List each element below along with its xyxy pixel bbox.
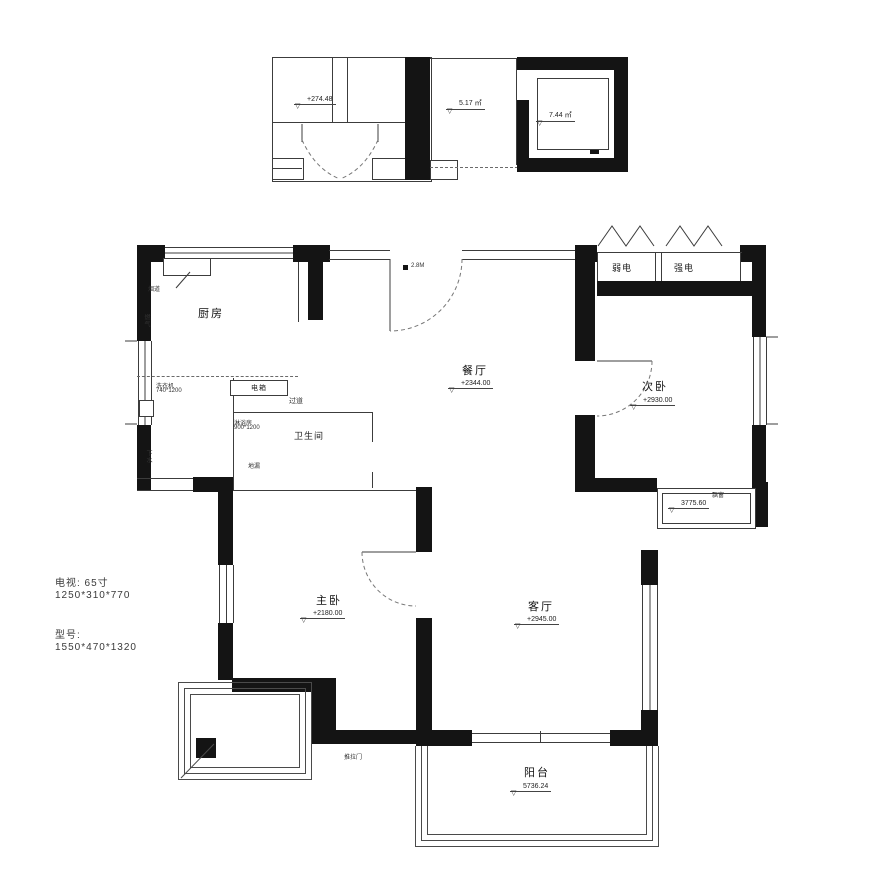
wall-segment <box>312 678 336 744</box>
weak-current-label: 弱电 <box>612 261 632 274</box>
wall-segment <box>597 281 755 296</box>
wall-segment <box>218 623 233 680</box>
living-window <box>642 585 658 710</box>
level-icon: ▽ <box>537 119 542 127</box>
bay-window-dim: ▽3775.60 <box>668 500 709 509</box>
room-label-master: 主卧 <box>316 592 342 608</box>
column-block <box>196 738 216 758</box>
wall-segment <box>575 245 597 262</box>
wall-segment <box>517 158 628 172</box>
wall-segment <box>575 415 595 492</box>
model-note-label: 型号: <box>55 626 81 641</box>
level-icon: ▽ <box>511 789 516 797</box>
shaft-divider-line <box>655 252 656 281</box>
annex-mid-room-line <box>430 58 517 59</box>
floor-plan-canvas: ▽+274.48 ▽5.17 ㎡ ▽7.44 ㎡ 弱电 强电 飘窗 ▽3775.… <box>0 0 871 895</box>
bath-wall-line <box>233 412 372 413</box>
wall-segment <box>614 57 628 172</box>
annex-shaft-line <box>332 57 333 122</box>
master-door-swing-arc <box>362 552 416 606</box>
master-window <box>219 565 234 623</box>
wall-segment <box>416 730 472 746</box>
master-top-wall-line <box>233 490 416 491</box>
wall-segment <box>137 262 151 341</box>
wall-line <box>137 490 193 491</box>
bedroom2-window <box>753 337 767 425</box>
shaft-wall-line <box>597 252 742 253</box>
flue-label: 烟道 <box>148 284 160 293</box>
wall-segment <box>308 262 323 320</box>
wall-segment-thin <box>329 250 390 260</box>
shaft-wall-line <box>740 252 741 281</box>
slide-door-label: 推拉门 <box>344 752 362 761</box>
annex-wall-stub <box>272 158 304 180</box>
kitchen-counter-dashed <box>137 376 298 377</box>
bath-wall-line <box>372 472 373 488</box>
washer-size-label: 740*1200 <box>156 388 182 394</box>
electrical-box: 电箱 <box>230 380 288 396</box>
shaft-divider-line <box>661 252 662 281</box>
wall-segment <box>416 618 432 730</box>
sliding-door-tick <box>540 731 541 743</box>
wall-segment <box>416 487 432 552</box>
balcony-dim: ▽5736.24 <box>510 783 551 792</box>
dining-dim: ▽+2344.00 <box>448 380 493 389</box>
room-label-kitchen: 厨房 <box>198 305 224 321</box>
wall-line <box>137 478 193 479</box>
annex-shaft-line <box>347 57 348 122</box>
bay-window-label: 飘窗 <box>712 490 724 499</box>
annex-wall-stub <box>430 160 458 180</box>
annex-wall-stub-line <box>272 168 302 169</box>
window-zigzag-icon <box>666 226 722 246</box>
bedroom2-dim: ▽+2930.00 <box>630 397 675 406</box>
shower-size-label: 900*1200 <box>234 425 260 431</box>
door-height-label: 2.8M <box>411 263 424 269</box>
wall-segment <box>641 550 658 585</box>
tv-note-label: 电视: 65寸 <box>55 574 109 589</box>
strong-current-label: 强电 <box>674 261 694 274</box>
room-label-bathroom: 卫生间 <box>294 429 324 442</box>
wall-segment-thin <box>462 250 575 260</box>
level-icon: ▽ <box>301 616 306 624</box>
wall-segment <box>610 730 658 746</box>
wall-segment <box>293 245 330 262</box>
living-dim: ▽+2945.00 <box>514 616 559 625</box>
annex-mid-area-dim: ▽5.17 ㎡ <box>446 98 485 110</box>
model-note-size: 1550*470*1320 <box>55 642 137 653</box>
floor-drain-label: 地漏 <box>248 461 260 470</box>
tv-note-size: 1250*310*770 <box>55 590 130 601</box>
door-marker-icon <box>403 265 408 270</box>
gas-label: 燃气 <box>142 314 151 328</box>
wall-segment <box>137 245 165 262</box>
fixture-box <box>139 400 154 417</box>
level-icon: ▽ <box>295 102 300 110</box>
level-icon: ▽ <box>447 107 452 115</box>
wall-segment <box>575 262 595 361</box>
level-icon: ▽ <box>449 386 454 394</box>
window-zigzag-icon <box>598 226 654 246</box>
room-label-balcony: 阳台 <box>524 764 550 780</box>
annex-right-area-dim: ▽7.44 ㎡ <box>536 110 575 122</box>
room-label-dining: 餐厅 <box>462 362 488 378</box>
wall-segment <box>218 490 233 565</box>
drain-pipe-label: 下水 <box>144 450 153 464</box>
wall-segment <box>752 425 766 482</box>
room-label-living: 客厅 <box>528 598 554 614</box>
electrical-box-label: 电箱 <box>251 383 267 393</box>
annex-left-level-dim: ▽+274.48 <box>294 96 336 105</box>
hallway-label: 过道 <box>289 396 303 406</box>
wall-segment <box>405 57 430 180</box>
wall-segment <box>595 478 657 492</box>
wall-segment <box>336 730 416 744</box>
balcony-sliding-door <box>472 733 610 743</box>
wall-segment <box>752 245 766 337</box>
level-icon: ▽ <box>669 506 674 514</box>
level-icon: ▽ <box>515 622 520 630</box>
flue-box <box>163 258 211 276</box>
level-icon: ▽ <box>631 403 636 411</box>
room-label-bedroom2: 次卧 <box>642 378 668 394</box>
entry-door-swing-arc <box>390 259 462 331</box>
kitchen-wall-line <box>298 262 299 322</box>
master-dim: ▽+2180.00 <box>300 610 345 619</box>
shaft-wall-line <box>597 252 598 281</box>
annex-wall-stub <box>372 158 407 180</box>
bath-wall-line <box>372 412 373 442</box>
wall-segment <box>517 100 529 158</box>
wall-segment <box>517 57 628 70</box>
